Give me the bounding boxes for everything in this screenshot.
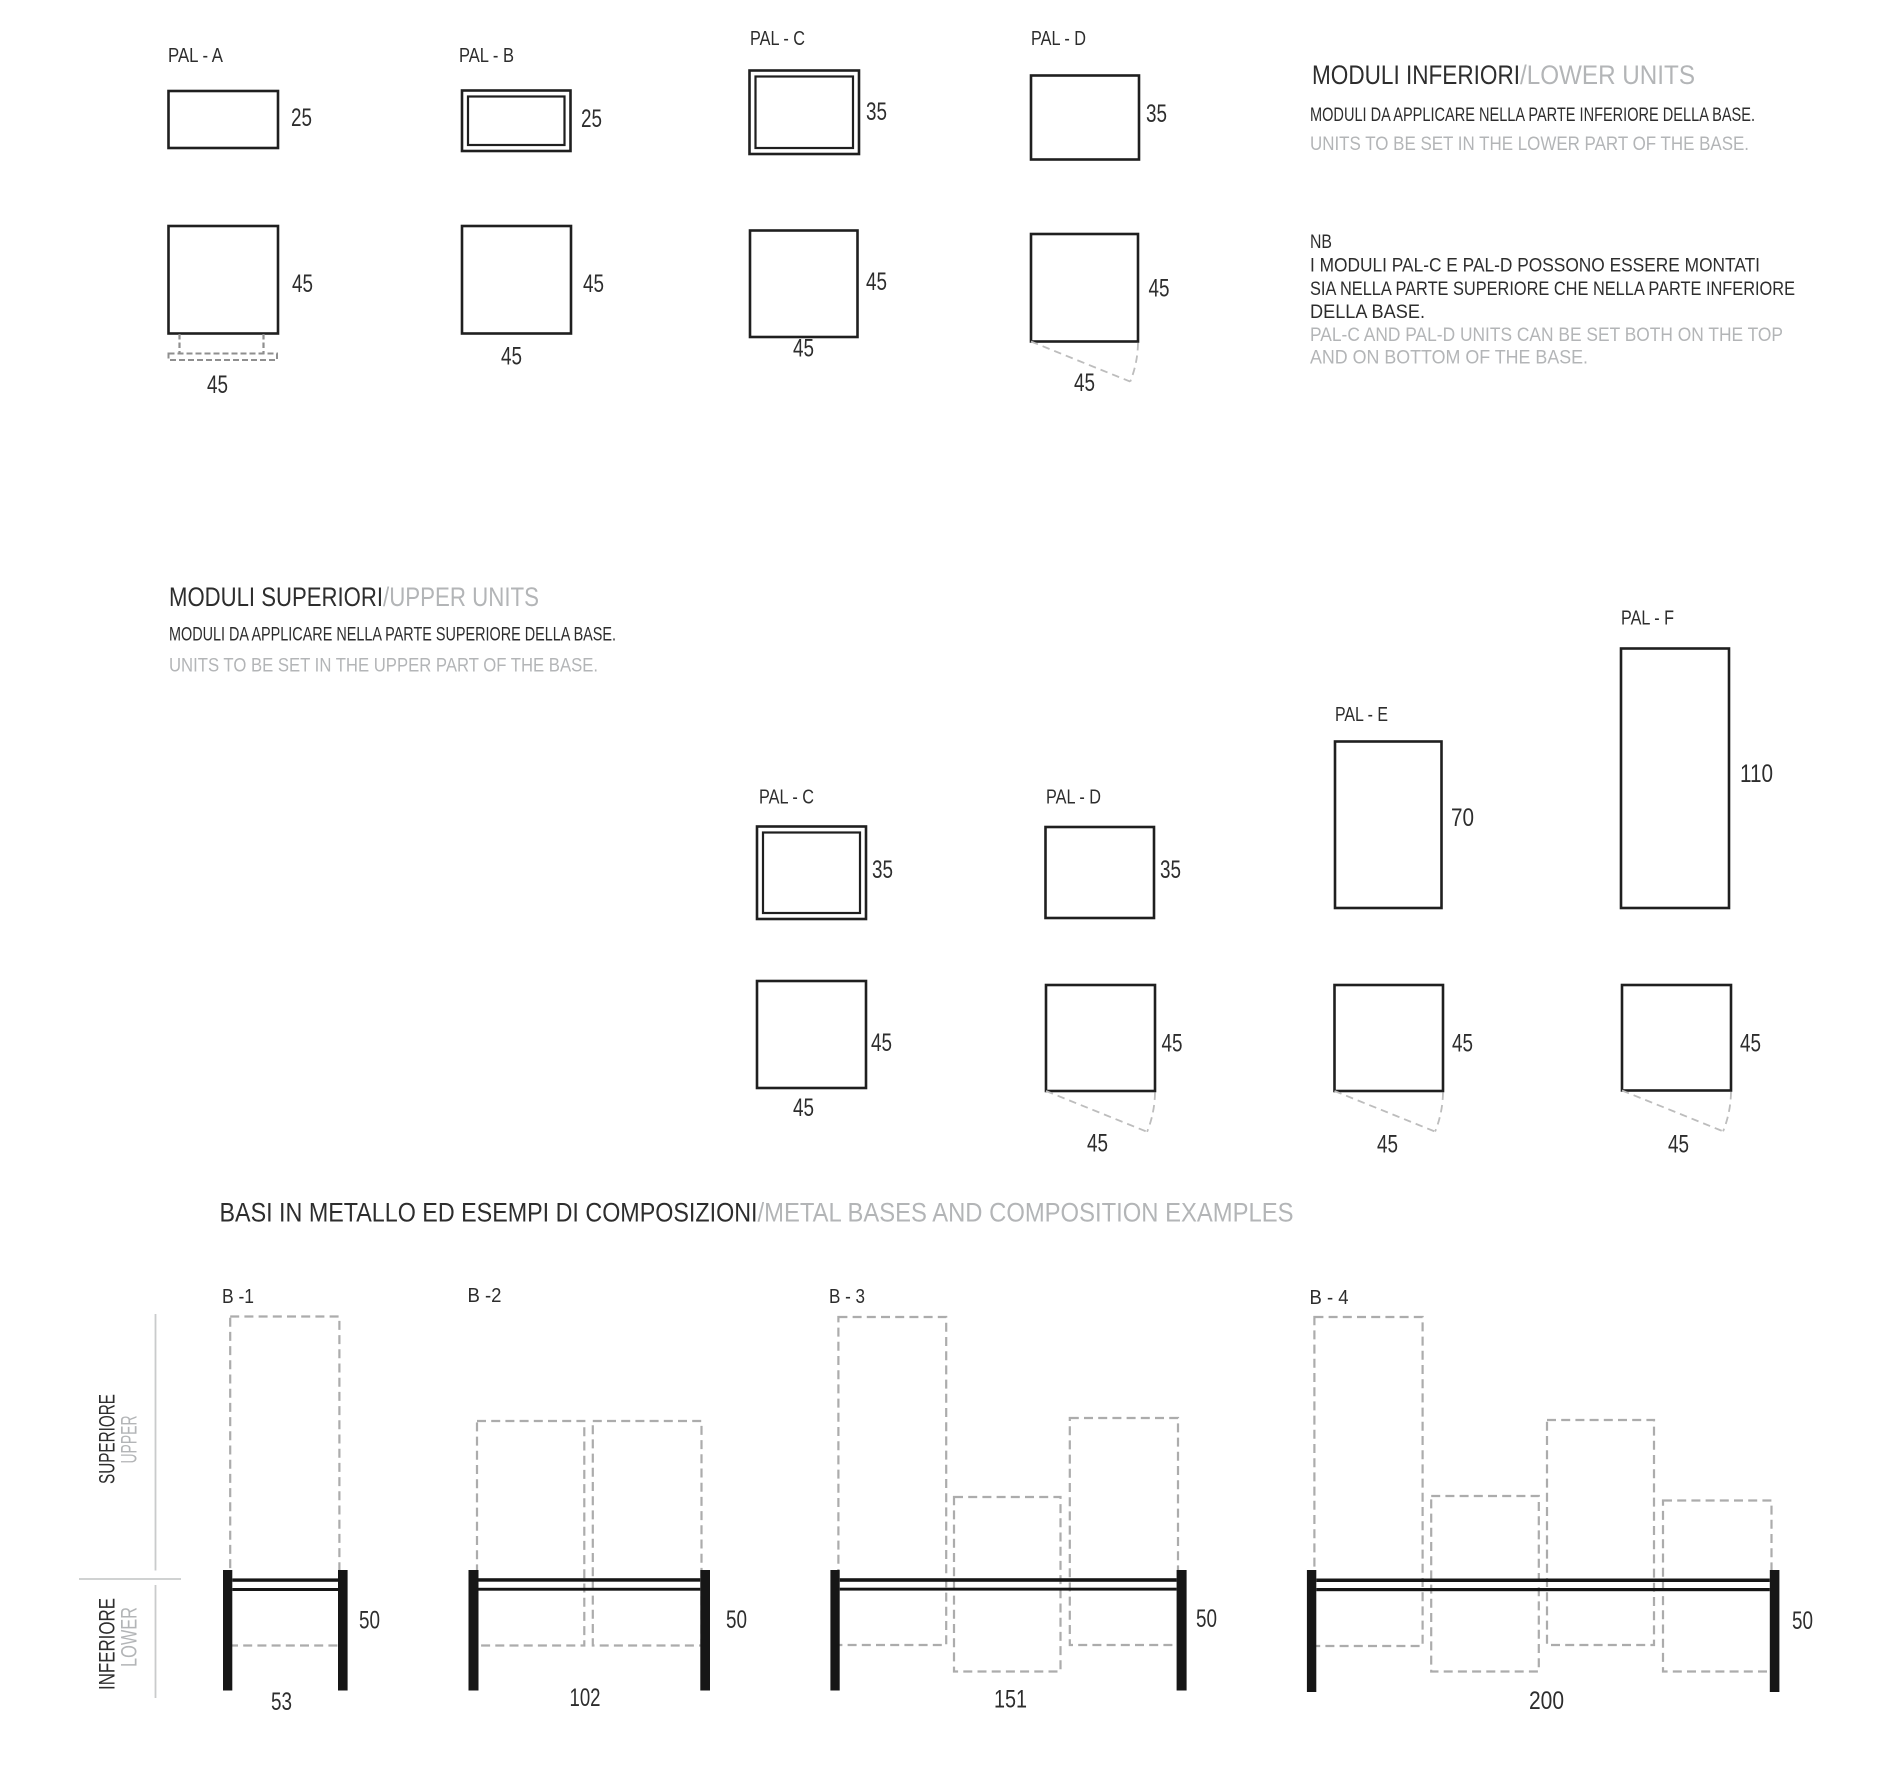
svg-text:45: 45 [793,1094,814,1122]
svg-text:45: 45 [1668,1131,1689,1159]
svg-text:45: 45 [1740,1030,1761,1058]
svg-text:NB: NB [1310,232,1332,253]
svg-text:/UPPER UNITS: /UPPER UNITS [383,582,539,612]
svg-text:45: 45 [793,335,814,363]
svg-text:45: 45 [1074,369,1095,397]
svg-text:53: 53 [271,1688,292,1716]
svg-text:45: 45 [292,270,313,298]
svg-text:45: 45 [1377,1131,1398,1159]
svg-text:PAL - A: PAL - A [168,45,224,67]
svg-text:45: 45 [1087,1130,1108,1158]
svg-text:50: 50 [359,1607,380,1635]
svg-text:I MODULI PAL-C E PAL-D POSSONO: I MODULI PAL-C E PAL-D POSSONO ESSERE MO… [1310,256,1760,277]
svg-text:25: 25 [291,104,312,132]
svg-text:110: 110 [1740,760,1773,788]
svg-text:45: 45 [1452,1030,1473,1058]
svg-text:MODULI DA APPLICARE NELLA PART: MODULI DA APPLICARE NELLA PARTE SUPERIOR… [169,625,616,646]
svg-text:SIA NELLA PARTE SUPERIORE CHE: SIA NELLA PARTE SUPERIORE CHE NELLA PART… [1310,279,1795,300]
svg-text:50: 50 [726,1606,747,1634]
svg-text:PAL - B: PAL - B [459,45,514,67]
svg-text:35: 35 [872,856,893,884]
svg-text:50: 50 [1196,1605,1217,1633]
svg-text:102: 102 [570,1684,601,1712]
svg-text:/METAL BASES AND COMPOSITION E: /METAL BASES AND COMPOSITION EXAMPLES [758,1198,1294,1228]
svg-text:45: 45 [871,1029,892,1057]
svg-text:35: 35 [1146,100,1167,128]
svg-text:MODULI INFERIORI: MODULI INFERIORI [1312,60,1520,90]
svg-text:PAL - D: PAL - D [1046,787,1101,809]
svg-text:35: 35 [866,98,887,126]
svg-text:UNITS TO BE SET IN THE UPPER P: UNITS TO BE SET IN THE UPPER PART OF THE… [169,656,598,677]
svg-text:70: 70 [1451,804,1474,832]
svg-text:45: 45 [1149,275,1170,303]
svg-text:LOWER: LOWER [117,1607,142,1667]
svg-text:45: 45 [866,268,887,296]
svg-text:50: 50 [1792,1607,1813,1635]
svg-text:B - 3: B - 3 [829,1286,865,1308]
svg-text:B - 4: B - 4 [1310,1287,1349,1309]
svg-text:AND ON BOTTOM OF THE BASE.: AND ON BOTTOM OF THE BASE. [1310,348,1588,369]
svg-text:PAL - C: PAL - C [750,28,805,50]
svg-text:PAL-C AND PAL-D UNITS CAN BE S: PAL-C AND PAL-D UNITS CAN BE SET BOTH ON… [1310,325,1783,346]
svg-text:151: 151 [994,1686,1027,1714]
svg-text:45: 45 [583,270,604,298]
svg-text:200: 200 [1529,1687,1564,1715]
svg-text:45: 45 [1162,1030,1183,1058]
svg-text:B -1: B -1 [222,1286,254,1308]
svg-text:UPPER: UPPER [117,1416,142,1464]
svg-text:PAL - D: PAL - D [1031,28,1086,50]
svg-text:PAL - F: PAL - F [1621,608,1674,630]
svg-text:45: 45 [501,343,522,371]
svg-text:45: 45 [207,371,228,399]
svg-text:/LOWER UNITS: /LOWER UNITS [1520,60,1695,90]
svg-text:PAL - E: PAL - E [1335,704,1388,726]
svg-text:PAL - C: PAL - C [759,787,814,809]
svg-text:35: 35 [1160,856,1181,884]
svg-text:MODULI DA APPLICARE NELLA PART: MODULI DA APPLICARE NELLA PARTE INFERIOR… [1310,105,1755,126]
svg-text:B -2: B -2 [468,1285,502,1307]
svg-text:UNITS TO BE SET IN THE LOWER P: UNITS TO BE SET IN THE LOWER PART OF THE… [1310,134,1749,155]
svg-text:MODULI SUPERIORI: MODULI SUPERIORI [169,582,383,612]
svg-text:BASI IN METALLO ED ESEMPI DI C: BASI IN METALLO ED ESEMPI DI COMPOSIZION… [220,1198,758,1228]
svg-text:25: 25 [581,105,602,133]
svg-text:DELLA BASE.: DELLA BASE. [1310,302,1425,323]
